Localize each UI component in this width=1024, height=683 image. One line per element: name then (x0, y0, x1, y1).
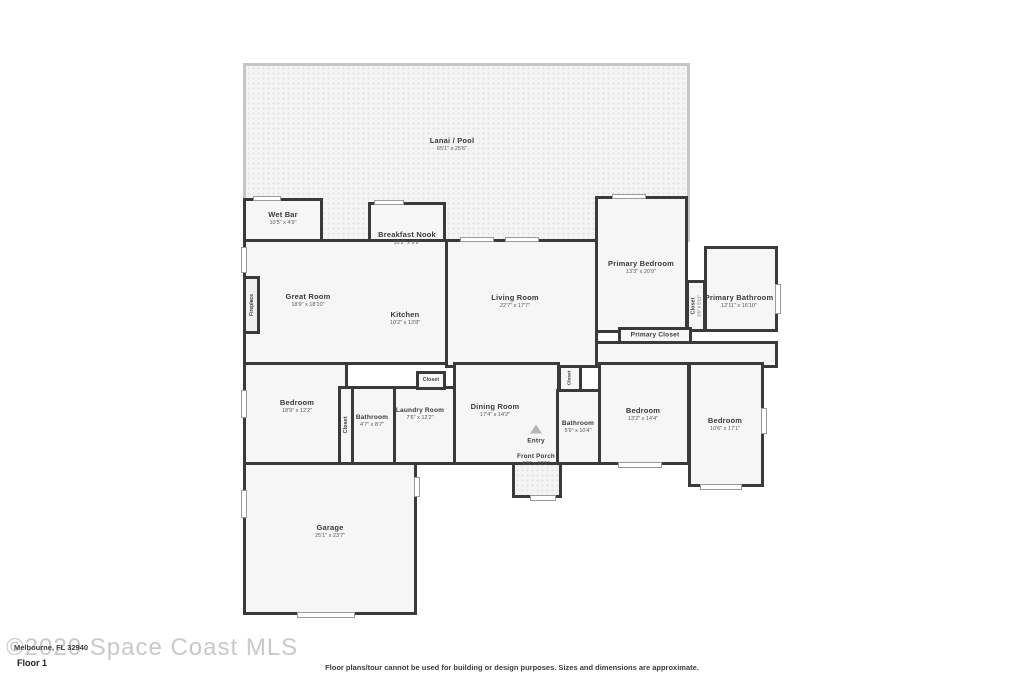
room-label-primary-bath-closet: Closet 2'6" x 5'11" (691, 295, 702, 317)
room-label-garage: Garage 25'1" x 23'7" (315, 523, 345, 539)
room-great-room (243, 239, 448, 365)
window (374, 200, 404, 205)
entry-marker-icon (530, 425, 542, 434)
window (460, 237, 494, 242)
room-label-bedroom-left: Bedroom 18'9" x 12'2" (280, 398, 314, 414)
room-label-primary-closet: Primary Closet (631, 332, 680, 339)
window (612, 194, 646, 199)
window (253, 196, 281, 201)
window (775, 284, 781, 314)
window (505, 237, 539, 242)
fireplace-label: Fireplace (249, 294, 255, 316)
room-label-lanai: Lanai / Pool 65'1" x 25'6" (430, 136, 475, 152)
room-label-primary-bedroom: Primary Bedroom 13'3" x 20'9" (608, 259, 674, 275)
room-label-wet-bar: Wet Bar 10'5" x 4'9" (268, 210, 298, 226)
room-label-dining: Dining Room 17'4" x 14'2" (471, 402, 520, 418)
window (414, 477, 420, 497)
room-label-laundry: Laundry Room 7'6" x 12'2" (396, 407, 444, 421)
window (761, 408, 767, 434)
room-label-bathroom-hall: Bathroom 5'9" x 10'4" (562, 420, 594, 434)
floor-label: Floor 1 (17, 658, 47, 668)
room-label-breakfast-nook: Breakfast Nook 10'2" x 9'9" (378, 230, 436, 246)
room-label-closet-laundry: Closet (423, 377, 439, 383)
floor-plan-page: Lanai / Pool 65'1" x 25'6" Wet Bar 10'5"… (0, 0, 1024, 683)
room-label-living-room: Living Room 22'7" x 17'7" (491, 293, 539, 309)
window (618, 462, 662, 468)
disclaimer-text: Floor plans/tour cannot be used for buil… (325, 663, 699, 672)
window (700, 484, 742, 490)
room-label-bedroom-right: Bedroom 10'6" x 17'1" (708, 416, 742, 432)
room-label-front-porch: Front Porch 6'8" x 10'5" (517, 453, 555, 467)
room-label-entry: Entry (527, 438, 545, 445)
room-primary-bathroom (704, 246, 778, 332)
room-label-primary-bathroom: Primary Bathroom 12'11" x 16'10" (705, 293, 774, 309)
window (241, 390, 247, 418)
room-label-kitchen: Kitchen 10'2" x 13'8" (390, 310, 420, 326)
room-label-bedroom-mid: Bedroom 13'2" x 14'4" (626, 406, 660, 422)
garage-door (297, 612, 355, 618)
room-label-closet-hall: Closet (568, 371, 573, 386)
room-label-closet-left: Closet (343, 417, 349, 434)
window (530, 495, 556, 501)
property-address: Melbourne, FL 32940 (14, 643, 88, 652)
window (241, 247, 247, 273)
room-label-great-room: Great Room 18'9" x 18'10" (286, 292, 331, 308)
window (241, 490, 247, 518)
room-label-bathroom-left: Bathroom 4'7" x 8'7" (356, 414, 388, 428)
room-laundry (393, 386, 458, 465)
